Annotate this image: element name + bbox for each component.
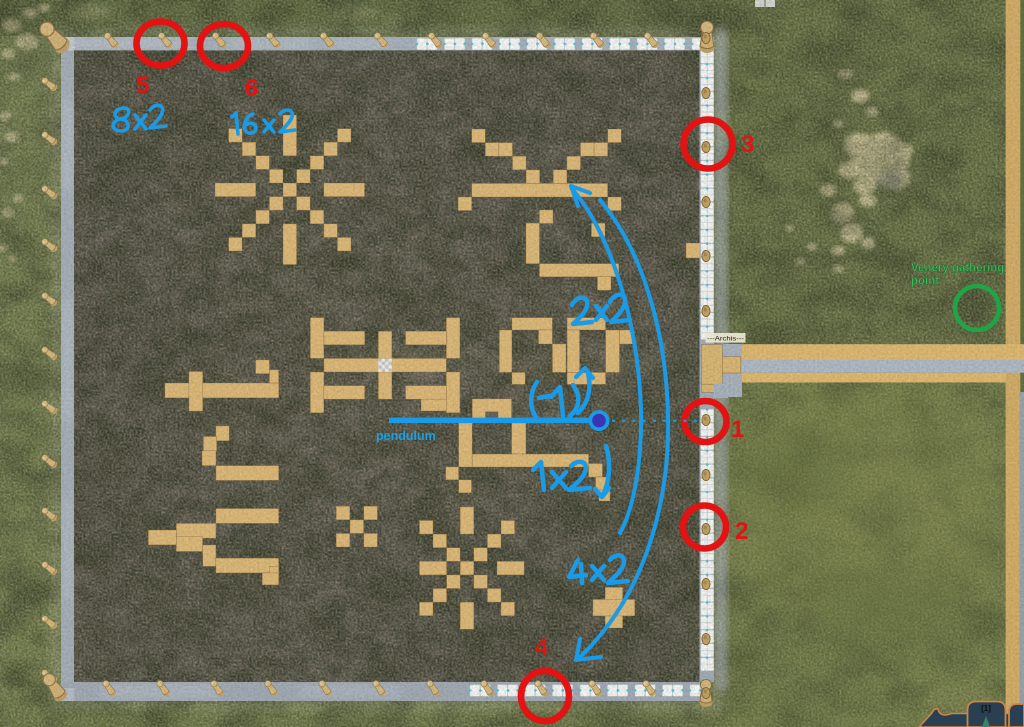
svg-text:2: 2 bbox=[735, 518, 748, 545]
svg-text:6: 6 bbox=[245, 75, 258, 102]
svg-text:1: 1 bbox=[731, 416, 744, 443]
svg-text:point: point bbox=[911, 276, 939, 288]
svg-text:---Archis---: ---Archis--- bbox=[707, 335, 744, 342]
svg-text:3: 3 bbox=[741, 131, 754, 158]
svg-text:pendulum: pendulum bbox=[376, 429, 436, 443]
svg-text:Venery gathering: Venery gathering bbox=[911, 263, 1004, 275]
svg-text:4: 4 bbox=[535, 634, 549, 661]
svg-text:5: 5 bbox=[136, 72, 149, 99]
svg-text:[1]: [1] bbox=[981, 704, 991, 713]
